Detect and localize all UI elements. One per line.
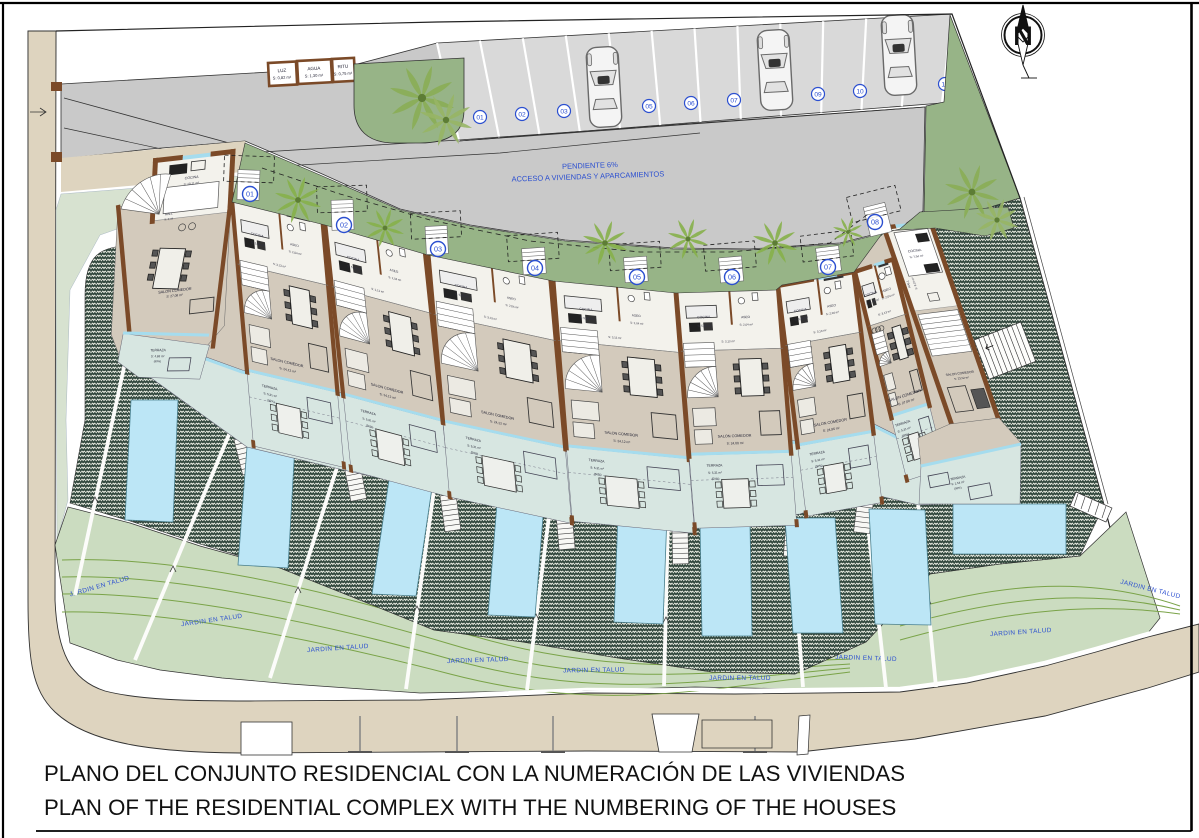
svg-text:S: 1,30 m²: S: 1,30 m² [305,72,324,78]
svg-text:(50%): (50%) [594,472,602,477]
svg-text:S: 2,04 m²: S: 2,04 m² [739,322,753,326]
svg-text:JARDIN EN TALUD: JARDIN EN TALUD [563,666,625,674]
svg-text:N: N [1013,21,1033,51]
svg-text:07: 07 [824,263,832,272]
svg-text:S: 0,82 m²: S: 0,82 m² [273,74,292,80]
svg-text:05: 05 [633,273,641,282]
svg-text:(50%): (50%) [711,477,719,481]
svg-text:02: 02 [518,111,526,118]
svg-text:02: 02 [340,221,348,230]
svg-text:JARDIN EN TALUD: JARDIN EN TALUD [709,675,771,682]
svg-text:AGUA: AGUA [307,66,321,72]
svg-text:S: 0,75 m²: S: 0,75 m² [334,70,353,76]
svg-text:RITU: RITU [337,64,348,70]
svg-text:TERRAZA: TERRAZA [706,463,723,467]
svg-text:S: 24,00 m²: S: 24,00 m² [726,441,744,446]
svg-text:ASEO: ASEO [741,315,751,319]
svg-text:LUZ: LUZ [277,68,286,73]
svg-text:01: 01 [246,190,254,199]
svg-text:COCINA: COCINA [697,315,711,319]
svg-text:TERRAZA: TERRAZA [150,348,167,352]
svg-text:(50%): (50%) [153,359,161,363]
svg-text:S: 5,49 m²: S: 5,49 m² [697,324,711,328]
svg-text:10: 10 [856,88,864,95]
svg-text:03: 03 [434,245,442,254]
svg-text:05: 05 [645,103,653,110]
svg-text:09: 09 [814,91,822,98]
svg-text:S: 3,13 m²: S: 3,13 m² [721,339,735,343]
svg-text:01: 01 [476,114,484,121]
svg-text:PLAN OF THE RESIDENTIAL COMPLE: PLAN OF THE RESIDENTIAL COMPLEX WITH THE… [44,795,896,820]
svg-text:07: 07 [730,97,738,104]
svg-text:06: 06 [728,273,736,282]
svg-text:04: 04 [531,264,539,273]
svg-text:S: 4,69 m²: S: 4,69 m² [151,354,165,358]
svg-text:06: 06 [687,100,695,107]
svg-text:03: 03 [560,108,568,115]
svg-text:S: 5,31 m²: S: 5,31 m² [708,470,722,474]
svg-text:PLANO DEL CONJUNTO RESIDENCIAL: PLANO DEL CONJUNTO RESIDENCIAL CON LA NU… [44,761,905,786]
svg-text:08: 08 [871,218,879,227]
